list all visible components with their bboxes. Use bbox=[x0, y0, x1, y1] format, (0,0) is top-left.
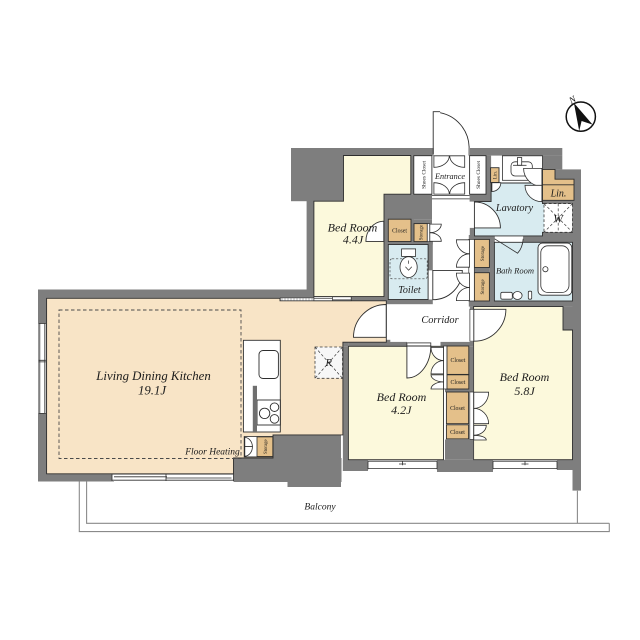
svg-text:W: W bbox=[553, 214, 564, 226]
svg-text:19.1J: 19.1J bbox=[138, 383, 167, 397]
svg-text:Closet: Closet bbox=[450, 430, 465, 436]
svg-text:Bath Room: Bath Room bbox=[496, 265, 534, 275]
svg-text:Living Dining Kitchen: Living Dining Kitchen bbox=[95, 369, 210, 383]
svg-text:Entrance: Entrance bbox=[434, 172, 465, 181]
svg-text:Floor Heating: Floor Heating bbox=[184, 448, 240, 458]
svg-text:Balcony: Balcony bbox=[304, 503, 336, 513]
svg-text:Closet: Closet bbox=[450, 380, 465, 386]
svg-text:Closet: Closet bbox=[450, 406, 465, 412]
svg-text:Shoes Closet: Shoes Closet bbox=[421, 160, 427, 189]
svg-text:5.8J: 5.8J bbox=[514, 384, 535, 398]
svg-text:Storage: Storage bbox=[420, 224, 425, 240]
svg-text:Lin.: Lin. bbox=[494, 171, 499, 179]
svg-text:Storage: Storage bbox=[264, 439, 269, 454]
svg-text:4.2J: 4.2J bbox=[391, 403, 412, 417]
svg-text:Corridor: Corridor bbox=[421, 315, 459, 326]
svg-text:Lavatory: Lavatory bbox=[495, 203, 534, 214]
svg-text:Closet: Closet bbox=[450, 358, 465, 364]
svg-text:Bed Room: Bed Room bbox=[377, 390, 427, 404]
svg-text:R: R bbox=[324, 358, 332, 369]
svg-text:Storage: Storage bbox=[481, 245, 486, 261]
svg-text:Closet: Closet bbox=[392, 228, 407, 234]
svg-text:Lin.: Lin. bbox=[550, 188, 567, 199]
svg-text:Shoes Closet: Shoes Closet bbox=[476, 160, 482, 189]
svg-text:Toilet: Toilet bbox=[398, 285, 421, 296]
svg-text:Bed Room: Bed Room bbox=[500, 370, 550, 384]
svg-text:4.4J: 4.4J bbox=[343, 233, 364, 247]
svg-text:Storage: Storage bbox=[481, 278, 486, 294]
